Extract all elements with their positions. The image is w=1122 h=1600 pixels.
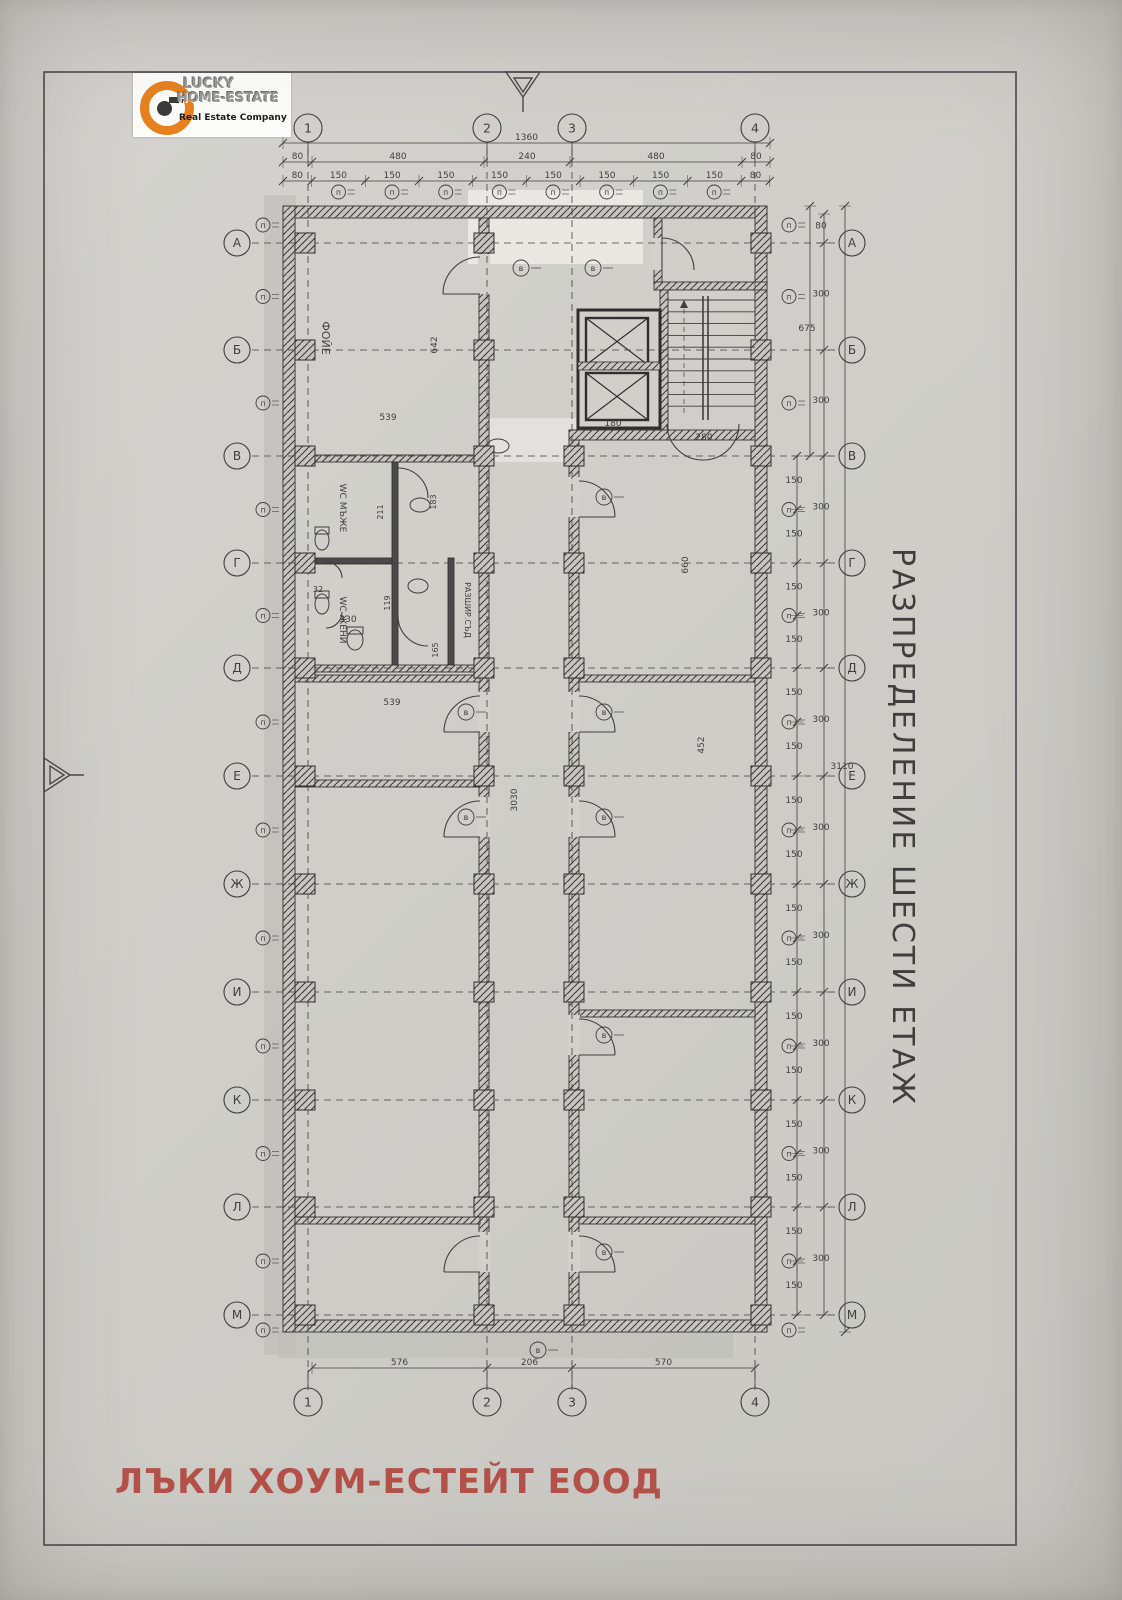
- axis-label-left-Д: Д: [232, 661, 241, 675]
- column: [474, 233, 494, 253]
- column: [564, 658, 584, 678]
- window-tag-letter: п: [261, 1042, 266, 1051]
- dim-right-steps-label: 150: [785, 688, 802, 698]
- axis-label-left-Г: Г: [233, 556, 240, 570]
- window-tag-letter: п: [261, 1150, 266, 1159]
- dim-right-steps-label: 150: [785, 958, 802, 968]
- dim-top-minor-label: 150: [652, 171, 669, 181]
- sink: [408, 579, 428, 593]
- dim-label: 211: [376, 504, 385, 519]
- axis-label-bottom-1: 1: [304, 1395, 312, 1410]
- door-tag-letter: в: [602, 493, 607, 502]
- logo-text-bottom: HOME-ESTATE: [177, 91, 279, 106]
- column: [564, 766, 584, 786]
- logo-dot-icon: [157, 101, 172, 116]
- dim-top-major-label: 480: [389, 152, 406, 162]
- dim-right-steps-label: 150: [785, 796, 802, 806]
- dim-right-steps-label: 150: [785, 1227, 802, 1237]
- window-tag-letter: п: [261, 612, 266, 621]
- axis-label-right-Б: Б: [848, 343, 856, 357]
- dim-top-minor-label: 150: [491, 171, 508, 181]
- window-tag-letter: п: [658, 188, 663, 197]
- column: [751, 1090, 771, 1110]
- column: [295, 446, 315, 466]
- window-tag-letter: п: [787, 506, 792, 515]
- door-tag-letter: в: [602, 1031, 607, 1040]
- window-tag-letter: п: [787, 826, 792, 835]
- column: [751, 982, 771, 1002]
- dim-right-steps-label: 150: [785, 742, 802, 752]
- door-tag-letter: в: [602, 708, 607, 717]
- floor-plan-drawing: ФОЙЕ WC МЪЖЕ WC ЖЕНИ РАЗШИР.СЪД 539 642 …: [0, 0, 1122, 1600]
- dim-right-pairs-label: 300: [812, 1039, 829, 1049]
- column: [751, 1305, 771, 1325]
- dim-top-major-label: 480: [647, 152, 664, 162]
- column: [564, 982, 584, 1002]
- column: [751, 658, 771, 678]
- door-tag-letter: в: [602, 813, 607, 822]
- window-tag-letter: п: [261, 399, 266, 408]
- column: [295, 766, 315, 786]
- logo-tagline: Real Estate Company: [179, 113, 287, 123]
- column: [474, 340, 494, 360]
- column: [474, 982, 494, 1002]
- window-tag-letter: п: [787, 221, 792, 230]
- column: [474, 874, 494, 894]
- column: [295, 1090, 315, 1110]
- window-tag-letter: п: [787, 934, 792, 943]
- axis-label-bottom-2: 2: [483, 1395, 491, 1410]
- column: [474, 658, 494, 678]
- window-tag-letter: п: [497, 188, 502, 197]
- axis-label-left-К: К: [233, 1093, 242, 1107]
- dim-right-pairs-label: 300: [812, 1147, 829, 1157]
- window-tag-letter: п: [261, 1257, 266, 1266]
- dim-top-minor-label: 150: [706, 171, 723, 181]
- dim-label: 539: [379, 413, 396, 423]
- dim-right-steps-label: 150: [785, 635, 802, 645]
- axis-label-left-В: В: [233, 449, 241, 463]
- door-tag-letter: в: [536, 1346, 541, 1355]
- window-tag-letter: п: [787, 293, 792, 302]
- dim-label: 165: [431, 642, 440, 657]
- footer-company-name: ЛЪКИ ХОУМ-ЕСТЕЙТ ЕООД: [115, 1462, 663, 1502]
- axis-label-right-Г: Г: [848, 556, 855, 570]
- window-tag-letter: п: [787, 1150, 792, 1159]
- dim-top-minor-label: 150: [330, 171, 347, 181]
- dim-label: 32: [313, 585, 323, 594]
- dim-top-minor-label: 80: [750, 171, 762, 181]
- dim-right-total-label: 3110: [831, 762, 854, 772]
- axis-label-left-Б: Б: [233, 343, 241, 357]
- axis-label-left-Ж: Ж: [231, 877, 244, 891]
- dim-right-pairs-label: 300: [812, 1254, 829, 1264]
- column: [564, 1197, 584, 1217]
- dim-right-steps-label: 150: [785, 850, 802, 860]
- column: [295, 658, 315, 678]
- column: [474, 1090, 494, 1110]
- logo-text-top: LUCKY: [183, 76, 234, 92]
- window-tag-letter: п: [712, 188, 717, 197]
- axis-label-right-В: В: [848, 449, 856, 463]
- stair-walkline-arrow: [680, 300, 688, 308]
- axis-label-top-4: 4: [751, 121, 759, 136]
- dim-right-steps-label: 150: [785, 1281, 802, 1291]
- axis-label-bottom-3: 3: [568, 1395, 576, 1410]
- window-tag-letter: п: [604, 188, 609, 197]
- axis-label-left-А: А: [233, 236, 242, 250]
- dim-right-steps-label: 150: [785, 1120, 802, 1130]
- window-tag-letter: п: [787, 1326, 792, 1335]
- dim-right-pairs-label: 300: [812, 931, 829, 941]
- axis-label-right-И: И: [848, 985, 857, 999]
- dim-top-minor-label: 80: [292, 171, 304, 181]
- column: [564, 1305, 584, 1325]
- dim-right-pairs-label: 300: [812, 290, 829, 300]
- dim-top-minor-label: 150: [545, 171, 562, 181]
- axis-label-right-Д: Д: [847, 661, 856, 675]
- column: [474, 1197, 494, 1217]
- dim-label: 539: [383, 698, 400, 708]
- window-tag-letter: п: [261, 293, 266, 302]
- column: [751, 446, 771, 466]
- dim-right-pairs-label: 80: [815, 222, 827, 232]
- dim-right-steps-label: 150: [785, 1173, 802, 1183]
- dim-label: 183: [429, 494, 438, 509]
- drawing-title: РАЗПРЕДЕЛЕНИЕ ШЕСТИ ЕТАЖ: [885, 548, 920, 1107]
- scanned-floor-plan-sheet: ФОЙЕ WC МЪЖЕ WC ЖЕНИ РАЗШИР.СЪД 539 642 …: [0, 0, 1122, 1600]
- dim-right-steps-label: 150: [785, 1066, 802, 1076]
- dim-label: 452: [697, 736, 707, 753]
- dim-top-minor-label: 150: [598, 171, 615, 181]
- window-tag-letter: п: [261, 221, 266, 230]
- axis-label-top-1: 1: [304, 121, 312, 136]
- dim-top-minor-label: 150: [437, 171, 454, 181]
- dim-label: 660: [681, 556, 691, 573]
- door-arcs: [326, 238, 739, 1272]
- dim-right-pairs-label: 300: [812, 823, 829, 833]
- window-tag-letter: п: [390, 188, 395, 197]
- column: [474, 1305, 494, 1325]
- window-tag-letter: п: [261, 826, 266, 835]
- door-tag-letter: в: [464, 813, 469, 822]
- column: [295, 340, 315, 360]
- dim-bottom-label: 206: [521, 1358, 538, 1368]
- dim-right-pairs-label: 300: [812, 503, 829, 513]
- dim-top-major-label: 80: [750, 152, 762, 162]
- column: [295, 874, 315, 894]
- north-marker-top: [506, 72, 540, 112]
- dim-right-partial-label: 675: [798, 324, 815, 334]
- column: [564, 446, 584, 466]
- dim-bottom-label: 576: [391, 1358, 408, 1368]
- column: [564, 874, 584, 894]
- axis-label-right-Л: Л: [847, 1200, 856, 1214]
- axis-label-right-М: М: [847, 1308, 857, 1322]
- dim-right-steps-label: 150: [785, 476, 802, 486]
- column: [295, 1197, 315, 1217]
- dim-label: 119: [383, 595, 392, 610]
- dim-right-pairs-label: 300: [812, 715, 829, 725]
- column: [295, 553, 315, 573]
- dim-label: 330: [339, 615, 356, 625]
- window-tag-letter: п: [787, 1257, 792, 1266]
- dim-top-minor-label: 150: [384, 171, 401, 181]
- agency-logo: LUCKY HOME-ESTATE Real Estate Company: [133, 73, 291, 137]
- dim-top-major-label: 240: [518, 152, 535, 162]
- column: [751, 1197, 771, 1217]
- column: [751, 233, 771, 253]
- column: [751, 553, 771, 573]
- window-tag-letter: п: [787, 399, 792, 408]
- window-tag-letter: п: [443, 188, 448, 197]
- axis-label-left-И: И: [233, 985, 242, 999]
- axis-label-bottom-4: 4: [751, 1395, 759, 1410]
- interior-dimensions: 539 642 3030 539 330 32 211 183 119 165 …: [313, 336, 713, 811]
- dim-label: 642: [430, 336, 440, 353]
- room-label-expansion: РАЗШИР.СЪД: [463, 582, 472, 638]
- dim-right-steps-label: 150: [785, 582, 802, 592]
- dim-label: 180: [604, 419, 621, 429]
- column: [474, 553, 494, 573]
- column: [564, 1090, 584, 1110]
- door-tag-letter: в: [602, 1248, 607, 1257]
- dim-right-pairs-label: 300: [812, 609, 829, 619]
- column: [295, 233, 315, 253]
- window-tag-letter: п: [787, 718, 792, 727]
- dim-right-steps-label: 150: [785, 1012, 802, 1022]
- door-tag-letter: в: [464, 708, 469, 717]
- elevator-shafts: [578, 310, 660, 428]
- axis-label-right-Ж: Ж: [846, 877, 859, 891]
- window-tag-letter: п: [336, 188, 341, 197]
- window-tag-letter: п: [551, 188, 556, 197]
- axis-label-top-2: 2: [483, 121, 491, 136]
- dim-top-total-label: 1360: [515, 133, 538, 143]
- window-tag-letter: п: [261, 934, 266, 943]
- sink: [410, 498, 430, 512]
- axis-label-top-3: 3: [568, 121, 576, 136]
- dim-right-steps-label: 150: [785, 529, 802, 539]
- window-tag-letter: п: [261, 718, 266, 727]
- column: [295, 982, 315, 1002]
- building-walls: [283, 206, 767, 1332]
- column: [295, 1305, 315, 1325]
- axis-label-left-М: М: [232, 1308, 242, 1322]
- axis-label-left-Е: Е: [233, 769, 241, 783]
- window-tag-letter: п: [787, 612, 792, 621]
- axis-label-left-Л: Л: [232, 1200, 241, 1214]
- door-tag-letter: в: [519, 264, 524, 273]
- axis-label-right-К: К: [848, 1093, 857, 1107]
- window-tag-letter: п: [261, 1326, 266, 1335]
- column: [474, 446, 494, 466]
- dim-bottom-label: 570: [655, 1358, 672, 1368]
- dim-right-steps-label: 150: [785, 904, 802, 914]
- axis-label-right-А: А: [848, 236, 857, 250]
- column: [751, 874, 771, 894]
- column: [751, 766, 771, 786]
- column: [751, 340, 771, 360]
- dim-right-pairs-label: 300: [812, 396, 829, 406]
- room-label-wc-men: WC МЪЖЕ: [337, 484, 347, 533]
- dim-label: 280: [695, 433, 712, 443]
- door-tag-letter: в: [591, 264, 596, 273]
- window-tag-letter: п: [261, 506, 266, 515]
- window-tag-letter: п: [787, 1042, 792, 1051]
- dim-label: 3030: [510, 788, 520, 811]
- section-marker-left: [44, 758, 84, 792]
- column: [564, 553, 584, 573]
- dim-top-major-label: 80: [292, 152, 304, 162]
- column: [474, 766, 494, 786]
